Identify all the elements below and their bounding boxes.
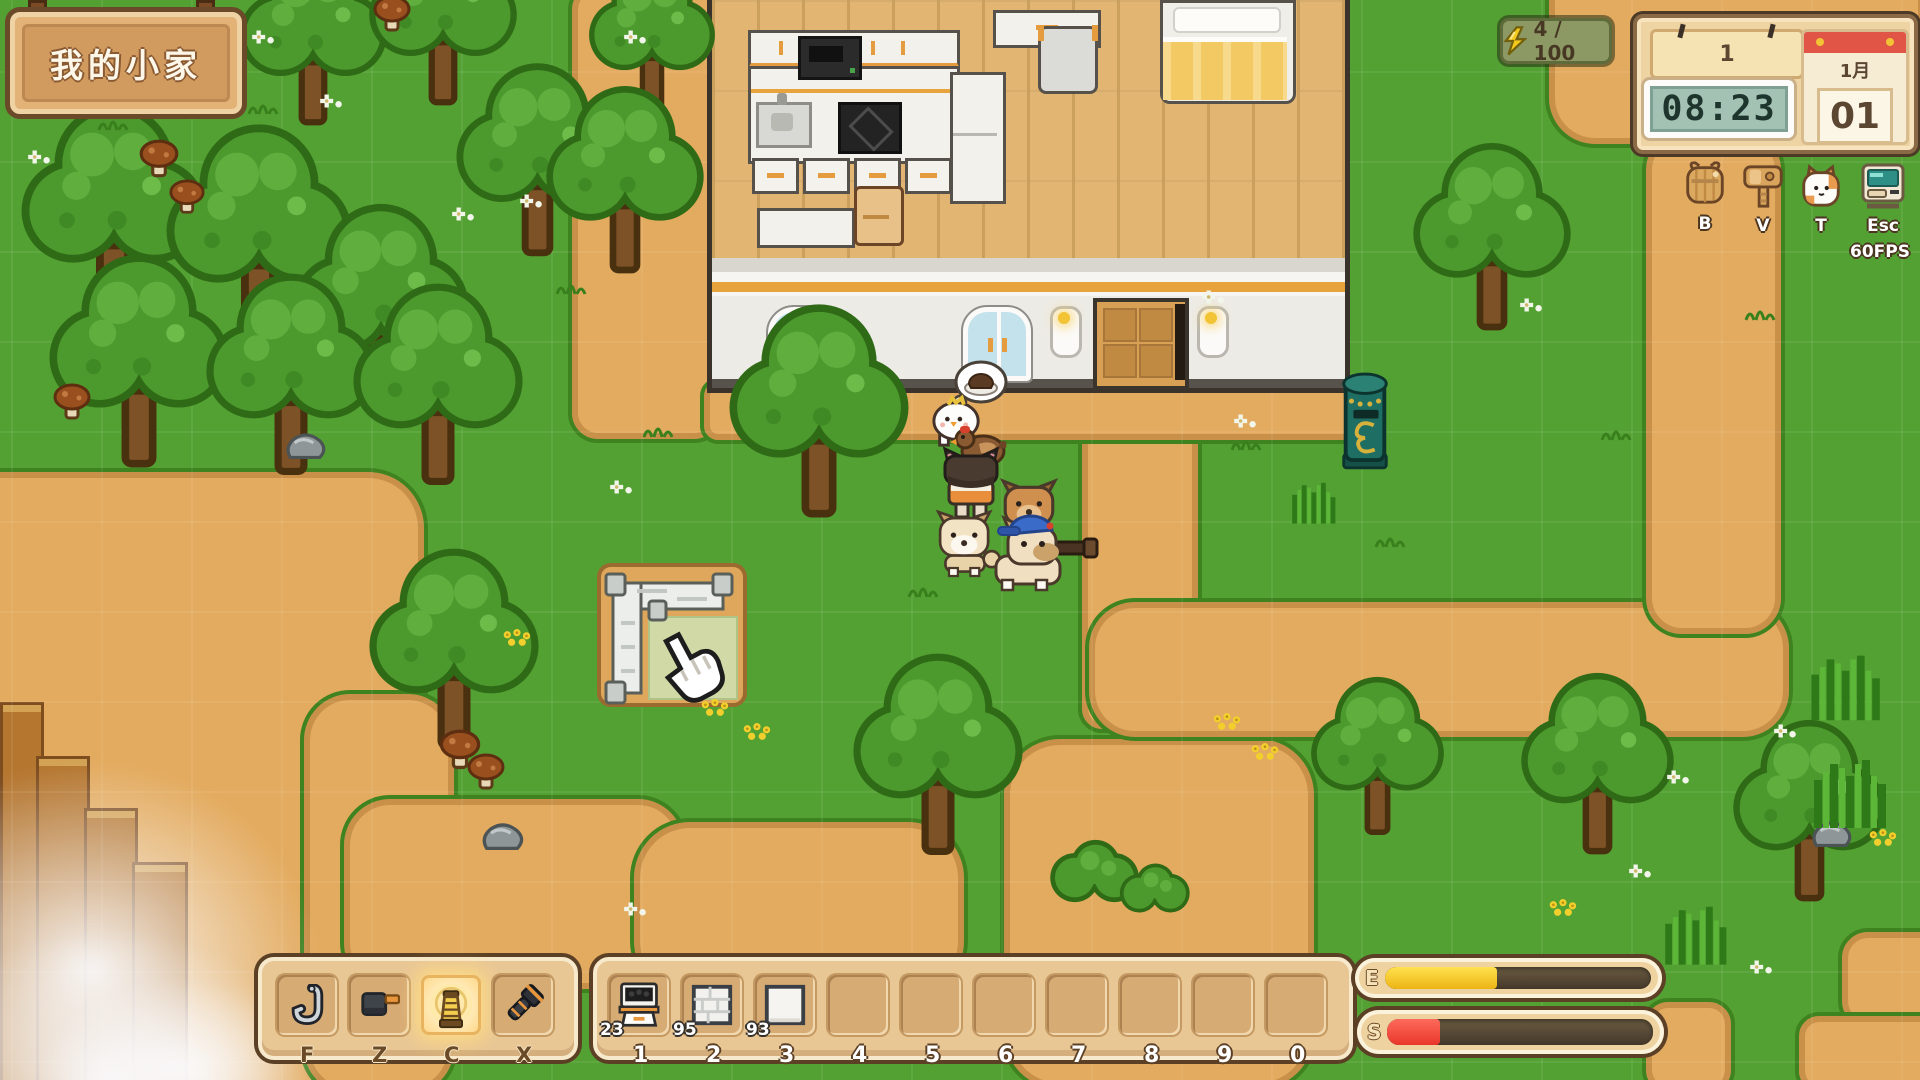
white-flowers xyxy=(318,92,344,110)
white-flowers xyxy=(518,192,544,210)
white-flowers xyxy=(1200,288,1226,306)
calendar: 1月 01 xyxy=(1801,29,1909,145)
kitchen-table[interactable] xyxy=(757,208,855,248)
mallet-icon xyxy=(1741,162,1785,210)
item-count: 93 xyxy=(746,1020,770,1040)
slot-key: 6 xyxy=(998,1043,1013,1068)
grass-tuft xyxy=(1598,418,1638,444)
tree[interactable] xyxy=(1520,665,1675,859)
shortcut-key: Esc xyxy=(1856,216,1910,236)
rock[interactable] xyxy=(478,820,526,855)
tool-slot-flashlight[interactable] xyxy=(493,975,553,1035)
tall-grass xyxy=(1285,478,1345,526)
hand-cursor xyxy=(655,632,721,708)
grass-tuft xyxy=(553,272,593,298)
stamina-bar-label: S xyxy=(1367,1020,1381,1044)
hotbar-slot-7[interactable] xyxy=(1047,975,1107,1035)
white-flowers xyxy=(1627,862,1653,880)
pet-icon xyxy=(1798,164,1844,210)
white-flowers xyxy=(622,28,648,46)
energy-bar-fill xyxy=(1385,967,1497,989)
clock-time: 08:23 xyxy=(1650,86,1788,132)
hotbar-slot-6[interactable] xyxy=(974,975,1034,1035)
hotbar-slot-5[interactable] xyxy=(901,975,961,1035)
slot-key: 0 xyxy=(1290,1043,1305,1068)
tool-key: C xyxy=(444,1043,459,1067)
hotbar-slot-1[interactable]: 23 xyxy=(609,975,669,1035)
tall-grass xyxy=(1655,900,1740,968)
tool-key: X xyxy=(516,1043,532,1067)
hotbar-slot-8[interactable] xyxy=(1120,975,1180,1035)
grass-tuft xyxy=(1372,525,1412,551)
tree[interactable] xyxy=(1310,670,1445,839)
wall-lamp xyxy=(1197,306,1229,358)
slot-key: 8 xyxy=(1144,1043,1159,1068)
shortcut-key: V xyxy=(1738,216,1788,236)
shortcut-key: T xyxy=(1796,216,1846,236)
cabinet-handle xyxy=(871,41,875,55)
tool-key: Z xyxy=(372,1043,387,1067)
door-opening xyxy=(1175,304,1185,380)
shortcut-key: B xyxy=(1680,214,1730,234)
fps-label: 60FPS xyxy=(1840,242,1920,262)
wall-white-band xyxy=(712,272,1345,282)
tree[interactable] xyxy=(728,295,910,523)
wall-orange-trim xyxy=(712,282,1345,292)
white-flowers xyxy=(1748,958,1774,976)
tool-slot-fishing[interactable] xyxy=(277,975,337,1035)
cliff-step xyxy=(84,808,138,1080)
tall-grass xyxy=(1802,752,1902,832)
digital-clock: 08:23 xyxy=(1644,80,1794,138)
slot-key: 2 xyxy=(706,1043,721,1068)
week-tag: 1 xyxy=(1650,29,1804,79)
interior-wall-band xyxy=(712,258,1345,272)
fish-hook-icon xyxy=(286,984,328,1026)
cabinet-handle xyxy=(901,41,905,55)
pin-icon xyxy=(1767,24,1775,39)
slot-key: 4 xyxy=(852,1043,867,1068)
grass-tuft xyxy=(1742,298,1782,324)
white-flowers xyxy=(622,900,648,918)
stamina-bar: S xyxy=(1357,1010,1664,1054)
grass-tuft xyxy=(1228,428,1268,454)
energy-counter-badge: 4 / 100 xyxy=(1500,18,1612,64)
white-flowers xyxy=(1232,412,1258,430)
mailbox[interactable] xyxy=(1336,368,1394,472)
tree[interactable] xyxy=(1412,135,1572,335)
hammer-icon xyxy=(358,984,400,1026)
cabinet-handle xyxy=(779,41,783,55)
rock[interactable] xyxy=(282,430,328,464)
wall-lamp xyxy=(1050,306,1082,358)
item-count: 95 xyxy=(673,1020,697,1040)
mushroom[interactable] xyxy=(168,178,206,218)
energy-counter-value: 4 / 100 xyxy=(1534,17,1609,65)
location-sign: 我的小家 xyxy=(10,12,242,114)
sand-patch-br-2 xyxy=(1795,1012,1920,1080)
slot-key: 3 xyxy=(779,1043,794,1068)
hotbar-slot-9[interactable] xyxy=(1193,975,1253,1035)
bed[interactable] xyxy=(1160,0,1296,104)
white-flowers xyxy=(450,205,476,223)
calendar-header xyxy=(1804,32,1906,53)
tree[interactable] xyxy=(545,78,705,278)
grass-tuft xyxy=(640,415,680,441)
tool-key: F xyxy=(300,1043,314,1067)
yellow-flowers xyxy=(1212,712,1244,732)
game-viewport: 我的小家 4 / 100 1 08:23 1月 01 B V T xyxy=(0,0,1920,1080)
microwave[interactable] xyxy=(798,36,862,80)
desk-chair[interactable] xyxy=(1038,26,1098,94)
flashlight-icon xyxy=(502,984,544,1026)
yellow-flowers xyxy=(1250,742,1282,762)
computer-icon xyxy=(1860,162,1906,210)
calendar-day: 01 xyxy=(1817,88,1893,144)
slot-key: 5 xyxy=(925,1043,940,1068)
shortcut-menu[interactable]: Esc xyxy=(1856,162,1910,236)
lightning-icon xyxy=(1503,26,1527,56)
stove-top[interactable] xyxy=(838,102,902,154)
tall-grass xyxy=(1800,648,1895,724)
tool-slot-lantern[interactable] xyxy=(421,975,481,1035)
item-count: 23 xyxy=(600,1020,624,1040)
yellow-flowers xyxy=(742,722,774,742)
backpack-icon xyxy=(1682,160,1728,208)
energy-bar: E xyxy=(1355,958,1662,998)
yellow-flowers xyxy=(1548,898,1580,918)
calendar-month: 1月 xyxy=(1804,57,1906,83)
slot-key: 1 xyxy=(633,1043,648,1068)
pin-icon xyxy=(1677,24,1685,39)
white-flowers xyxy=(250,28,276,46)
white-flowers xyxy=(1665,768,1691,786)
yellow-flowers xyxy=(1868,828,1900,848)
mushroom[interactable] xyxy=(466,752,506,794)
slot-key: 9 xyxy=(1217,1043,1232,1068)
high-chair[interactable] xyxy=(854,186,904,246)
tool-slot-hammer[interactable] xyxy=(349,975,409,1035)
front-door[interactable] xyxy=(1093,298,1189,390)
lantern-icon xyxy=(428,981,474,1029)
white-flowers xyxy=(1518,296,1544,314)
cliff-step xyxy=(36,756,90,1080)
hotbar-slot-2[interactable]: 95 xyxy=(682,975,742,1035)
hotbar-slot-10[interactable] xyxy=(1266,975,1326,1035)
slot-key: 7 xyxy=(1071,1043,1086,1068)
mushroom[interactable] xyxy=(138,138,180,182)
hotbar-slot-3[interactable]: 93 xyxy=(755,975,815,1035)
tree[interactable] xyxy=(852,645,1024,860)
grass-tuft xyxy=(245,92,285,118)
white-flowers xyxy=(608,478,634,496)
clock-panel: 1 08:23 1月 01 xyxy=(1633,14,1918,154)
white-flowers xyxy=(26,148,52,166)
hotbar: 23 95 93 1 2 3 4 5 6 7 8 9 0 xyxy=(593,957,1353,1060)
mushroom[interactable] xyxy=(372,0,412,36)
stamina-bar-track xyxy=(1387,1019,1653,1045)
hotbar-slot-4[interactable] xyxy=(828,975,888,1035)
energy-bar-track xyxy=(1385,967,1651,989)
cliff-step xyxy=(132,862,188,1080)
energy-bar-label: E xyxy=(1365,966,1379,990)
kitchen-drawers[interactable] xyxy=(752,158,952,194)
tool-bar: F Z C X xyxy=(258,957,578,1060)
mushroom[interactable] xyxy=(52,382,92,424)
white-flowers xyxy=(1772,722,1798,740)
dog-blue-cap[interactable] xyxy=(980,512,1100,598)
tree[interactable] xyxy=(48,245,230,473)
tree[interactable] xyxy=(352,275,524,490)
kitchen-sink[interactable] xyxy=(756,102,812,148)
bush xyxy=(1118,862,1193,914)
fridge[interactable] xyxy=(950,72,1006,204)
shortcut-build[interactable]: V xyxy=(1738,162,1788,236)
location-title: 我的小家 xyxy=(50,39,202,87)
yellow-flowers xyxy=(502,628,534,648)
shortcut-backpack[interactable]: B xyxy=(1680,160,1730,234)
shortcut-pets[interactable]: T xyxy=(1796,164,1846,236)
stamina-bar-fill xyxy=(1387,1019,1440,1045)
